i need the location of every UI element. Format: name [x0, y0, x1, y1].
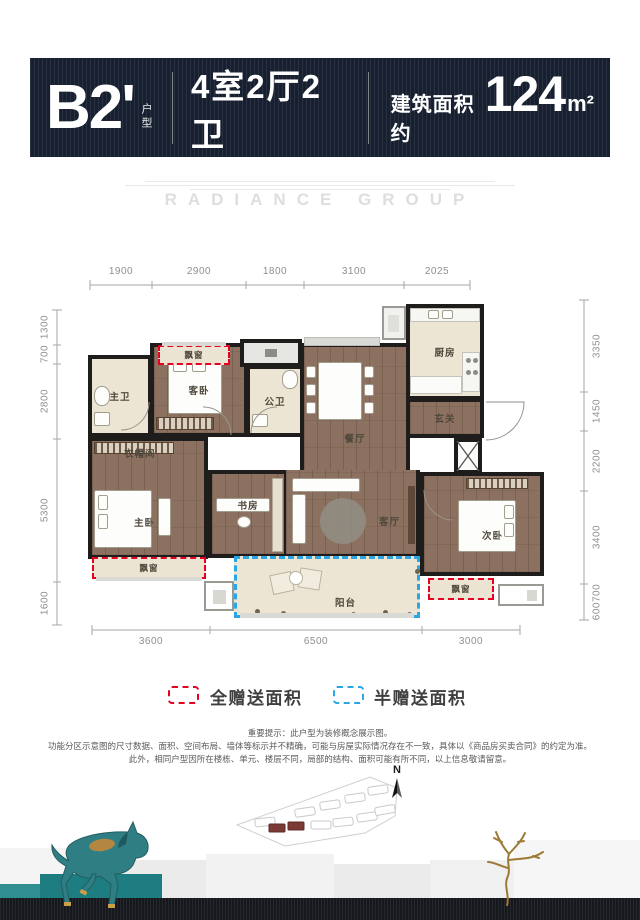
toilet-icon [94, 386, 110, 406]
branch-decor [455, 820, 575, 906]
room-label: 飘窗 [451, 583, 470, 595]
room-label: 餐厅 [344, 431, 365, 445]
room-label: 公卫 [264, 394, 285, 408]
dim-top: 1800 [263, 266, 287, 277]
dim-right: 1450 [592, 399, 603, 423]
floorplan-poster: B2' 户型 4室2厅2卫 建筑面积约 124 m² RADIANCE GROU… [0, 0, 640, 920]
dim-bottom: 3000 [459, 636, 483, 647]
skyline-block [334, 864, 430, 900]
room-label: 主卧 [134, 515, 155, 529]
area-group: 建筑面积约 124 m² [391, 69, 594, 146]
dresser-icon [156, 417, 214, 430]
header-band: B2' 户型 4室2厅2卫 建筑面积约 124 m² [30, 58, 610, 157]
shaft [454, 438, 482, 474]
disclaimer-line: 重要提示：此户型为装修概念展示图。 [20, 727, 620, 740]
dim-left: 5300 [40, 498, 51, 522]
bench-icon [158, 498, 171, 536]
dining-table-icon [318, 362, 362, 420]
header-divider [172, 72, 173, 144]
sink-icon [252, 414, 268, 427]
legend-half-gift-label: 半赠送面积 [374, 684, 467, 709]
dim-left: 2800 [40, 389, 51, 413]
bay-window-top: 飘窗 [158, 345, 230, 365]
dim-left: 700 [40, 345, 51, 363]
legend-full-gift-label: 全赠送面积 [210, 684, 303, 709]
disclaimer-line: 此外，相同户型因所在楼栋、单元、楼层不同，局部的结构、面积可能有所不同，以上信息… [20, 753, 620, 766]
pillow-icon [504, 523, 514, 537]
chair-icon [306, 384, 316, 396]
dim-bottom: 6500 [304, 636, 328, 647]
room-label: 书房 [237, 498, 258, 512]
room-foyer: 玄关 [406, 398, 484, 438]
dim-bottom: 3600 [139, 636, 163, 647]
unit-type-label: 户型 [138, 103, 154, 131]
dim-left: 1300 [40, 315, 51, 339]
unit-code: B2' [46, 77, 134, 139]
toilet-icon [282, 370, 298, 389]
chair-icon [364, 384, 374, 396]
dim-left: 1600 [40, 591, 51, 615]
balcony-table [289, 571, 303, 585]
balcony-window-strip [240, 613, 414, 618]
room-label: 飘窗 [184, 349, 203, 361]
platform-box [382, 306, 406, 340]
bookshelf-icon [272, 478, 283, 552]
dim-right: 2200 [592, 449, 603, 473]
dim-right: 600700 [592, 584, 603, 620]
legend-full-gift-swatch [168, 686, 199, 704]
legend-half-gift-swatch [333, 686, 364, 704]
header-divider [368, 72, 369, 144]
bay-window-right: 飘窗 [428, 578, 494, 600]
disclaimer-line: 功能分区示意图的尺寸数据、面积、空间布局、墙体等标示并不精确，可能与房屋实际情况… [20, 740, 620, 753]
dim-top: 3100 [342, 266, 366, 277]
area-value: 124 [485, 69, 565, 119]
sink-icon [442, 310, 453, 319]
watermark-tiny-line [145, 181, 495, 182]
utility-platform [240, 339, 302, 367]
chair-icon [237, 516, 251, 528]
washer-box [204, 581, 234, 611]
dim-right: 3350 [592, 334, 603, 358]
wardrobe-icon [466, 478, 528, 489]
sink-icon [428, 310, 439, 319]
bay-window-left: 飘窗 [92, 557, 206, 579]
room-label: 主卫 [109, 389, 130, 403]
room-label: 玄关 [434, 411, 455, 425]
chair-icon [306, 402, 316, 414]
dim-top: 2025 [425, 266, 449, 277]
tv-console-icon [408, 486, 415, 544]
pillow-icon [98, 514, 108, 529]
room-label: 次卧 [482, 528, 503, 542]
dim-top: 2900 [187, 266, 211, 277]
stove-icon [462, 352, 480, 392]
room-label: 客卧 [188, 383, 209, 397]
pillow-icon [504, 505, 514, 519]
dim-top: 1900 [109, 266, 133, 277]
room-label: 客厅 [379, 514, 400, 528]
sofa-icon [292, 478, 360, 492]
skyline-block [206, 854, 334, 900]
rug-icon [320, 498, 366, 544]
bay-window-strip [162, 342, 226, 346]
sofa-icon [292, 494, 306, 544]
kitchen-island [410, 376, 462, 394]
dim-right: 3400 [592, 525, 603, 549]
room-label: 衣帽间 [124, 446, 156, 460]
room-label: 飘窗 [139, 562, 158, 574]
chair-icon [364, 366, 374, 378]
chair-icon [306, 366, 316, 378]
area-unit: m² [567, 91, 594, 117]
room-label: 厨房 [434, 345, 455, 359]
area-prefix: 建筑面积约 [391, 88, 481, 146]
watermark-tiny-line [125, 185, 515, 186]
site-plan [225, 768, 415, 860]
chair-icon [364, 402, 374, 414]
equipment-box [498, 584, 544, 606]
compass-north-label: N [393, 764, 401, 776]
horse-statue [30, 818, 160, 910]
dining-window-strip [304, 337, 380, 346]
watermark-text: RADIANCE GROUP [0, 190, 640, 210]
room-layout-text: 4室2厅2卫 [191, 60, 346, 156]
room-label: 阳台 [335, 595, 356, 609]
bay-window-strip [96, 577, 202, 581]
pillow-icon [98, 495, 108, 510]
sink-icon [94, 412, 110, 426]
balcony: 阳台 [234, 556, 420, 618]
